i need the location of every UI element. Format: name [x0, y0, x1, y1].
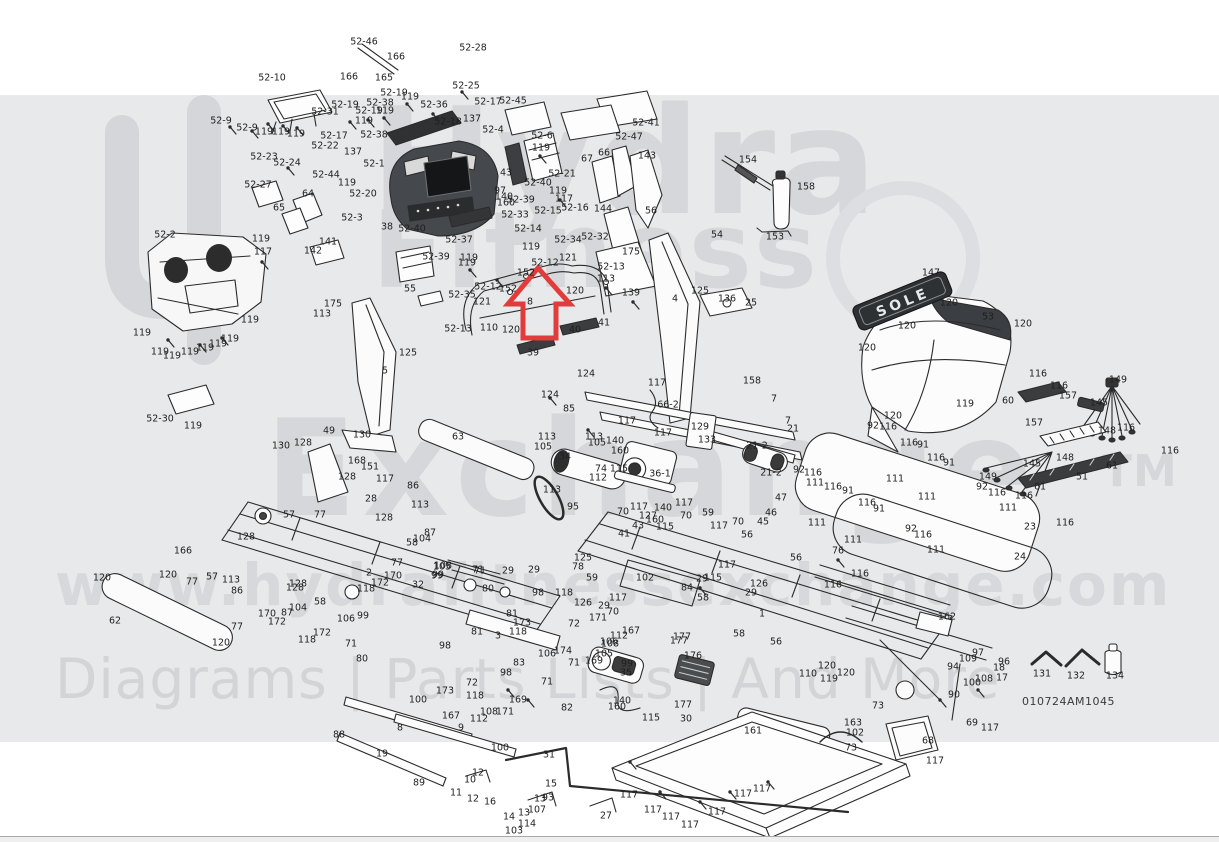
part-label-147: 147	[922, 268, 940, 278]
part-label-105: 105	[534, 442, 552, 452]
part-label-120: 120	[159, 570, 177, 580]
part-label-98: 98	[500, 668, 512, 678]
part-label-72: 72	[466, 678, 478, 688]
part-label-71: 71	[345, 639, 357, 649]
part-label-172: 172	[313, 628, 331, 638]
part-label-177: 177	[670, 636, 688, 646]
part-label-52-2: 52-2	[154, 230, 176, 240]
part-label-119: 119	[133, 328, 151, 338]
part-label-157: 157	[1025, 418, 1043, 428]
part-label-91: 91	[842, 486, 854, 496]
part-label-52-27: 52-27	[244, 180, 272, 190]
part-label-30: 30	[680, 714, 692, 724]
part-label-13: 13	[534, 794, 546, 804]
part-label-173: 173	[436, 686, 454, 696]
part-label-124: 124	[541, 390, 559, 400]
part-label-52-36: 52-36	[420, 100, 448, 110]
part-label-116: 116	[988, 488, 1006, 498]
part-label-116: 116	[914, 530, 932, 540]
part-label-119: 119	[522, 242, 540, 252]
part-label-111: 111	[886, 474, 904, 484]
part-label-115: 115	[656, 522, 674, 532]
diagram-code: 010724AM1045	[1022, 695, 1115, 708]
part-label-167: 167	[442, 711, 460, 721]
part-label-154: 154	[739, 155, 757, 165]
part-label-16: 16	[484, 797, 496, 807]
part-label-100: 100	[491, 743, 509, 753]
part-label-86: 86	[231, 586, 243, 596]
part-label-52-18: 52-18	[434, 117, 462, 127]
part-label-52-38: 52-38	[360, 130, 388, 140]
part-label-137: 137	[344, 147, 362, 157]
part-label-113: 113	[543, 485, 561, 495]
part-label-21-2: 21-2	[760, 468, 782, 478]
part-label-95: 95	[567, 502, 579, 512]
part-label-172: 172	[268, 617, 286, 627]
part-label-117: 117	[675, 498, 693, 508]
part-label-52-33: 52-33	[501, 210, 529, 220]
part-label-68: 68	[922, 736, 934, 746]
part-label-169: 169	[585, 656, 603, 666]
part-label-52-34: 52-34	[554, 235, 582, 245]
part-label-152: 152	[499, 284, 517, 294]
part-label-52-37: 52-37	[445, 235, 473, 245]
part-label-64: 64	[302, 189, 314, 199]
part-label-52-45: 52-45	[499, 96, 527, 106]
part-label-52-39: 52-39	[422, 252, 450, 262]
part-label-136: 136	[718, 294, 736, 304]
part-label-103: 103	[505, 826, 523, 836]
part-label-91: 91	[873, 504, 885, 514]
part-label-52-35: 52-35	[448, 290, 476, 300]
part-label-56: 56	[770, 637, 782, 647]
part-label-143: 143	[638, 151, 656, 161]
part-label-120: 120	[566, 286, 584, 296]
part-label-113: 113	[597, 274, 615, 284]
part-label-118: 118	[466, 691, 484, 701]
part-label-116: 116	[1161, 446, 1179, 456]
part-label-52-41: 52-41	[632, 118, 660, 128]
part-label-88: 88	[333, 730, 345, 740]
part-label-128: 128	[294, 438, 312, 448]
part-label-52-44: 52-44	[312, 170, 340, 180]
part-label-175: 175	[622, 247, 640, 257]
part-label-52-21: 52-21	[548, 169, 576, 179]
part-label-7: 7	[771, 394, 777, 404]
part-label-94: 94	[947, 662, 959, 672]
part-label-171: 171	[589, 613, 607, 623]
part-label-31: 31	[543, 750, 555, 760]
part-label-4: 4	[672, 294, 678, 304]
part-label-125: 125	[691, 286, 709, 296]
part-label-59: 59	[702, 508, 714, 518]
part-label-52-47: 52-47	[615, 132, 643, 142]
part-label-1: 1	[759, 609, 765, 619]
part-label-58: 58	[314, 597, 326, 607]
part-label-176: 176	[684, 651, 702, 661]
part-label-126: 126	[574, 598, 592, 608]
part-label-52-22: 52-22	[311, 141, 339, 151]
part-label-113: 113	[222, 575, 240, 585]
part-label-131: 131	[1033, 669, 1051, 679]
part-label-66-2: 66-2	[657, 400, 679, 410]
part-label-111: 111	[999, 503, 1017, 513]
part-label-169: 169	[509, 695, 527, 705]
part-label-109: 109	[959, 654, 977, 664]
part-label-60: 60	[1002, 396, 1014, 406]
part-label-117: 117	[648, 378, 666, 388]
part-label-84: 84	[681, 583, 693, 593]
part-label-120: 120	[898, 321, 916, 331]
part-label-24: 24	[1014, 552, 1026, 562]
part-label-91: 91	[917, 440, 929, 450]
part-label-128: 128	[375, 513, 393, 523]
part-label-35: 35	[620, 668, 632, 678]
part-label-69: 69	[966, 718, 978, 728]
part-label-52-46: 52-46	[350, 37, 378, 47]
part-label-137: 137	[463, 114, 481, 124]
part-label-34: 34	[559, 452, 571, 462]
part-label-116: 116	[1015, 491, 1033, 501]
part-label-152: 152	[517, 268, 535, 278]
part-label-90: 90	[948, 690, 960, 700]
bottom-strip	[0, 837, 1219, 842]
part-label-120: 120	[93, 573, 111, 583]
part-label-73: 73	[845, 743, 857, 753]
part-label-70: 70	[680, 511, 692, 521]
part-label-117: 117	[254, 247, 272, 257]
part-label-119: 119	[401, 92, 419, 102]
part-label-133: 133	[698, 435, 716, 445]
part-label-116: 116	[879, 422, 897, 432]
part-label-117: 117	[620, 790, 638, 800]
part-label-119: 119	[820, 674, 838, 684]
part-label-58: 58	[697, 593, 709, 603]
part-label-107: 107	[528, 805, 546, 815]
part-label-12: 12	[467, 794, 479, 804]
part-label-119: 119	[241, 315, 259, 325]
part-label-52-13: 52-13	[444, 324, 472, 334]
part-label-11: 11	[450, 788, 462, 798]
part-label-120: 120	[1014, 319, 1032, 329]
part-label-120: 120	[940, 298, 958, 308]
part-label-119: 119	[287, 129, 305, 139]
part-label-19: 19	[376, 749, 388, 759]
part-label-158: 158	[797, 182, 815, 192]
part-label-112: 112	[589, 473, 607, 483]
part-label-78: 78	[572, 562, 584, 572]
part-label-86: 86	[407, 481, 419, 491]
part-label-99: 99	[357, 611, 369, 621]
part-label-57: 57	[206, 572, 218, 582]
part-label-117: 117	[618, 416, 636, 426]
part-label-27: 27	[600, 811, 612, 821]
part-label-145: 145	[1090, 398, 1108, 408]
part-label-117: 117	[710, 521, 728, 531]
part-label-52-16: 52-16	[561, 203, 589, 213]
part-label-157: 157	[1059, 391, 1077, 401]
parts-diagram-page: Hydra Fitness Exchange TM www.hydrafitne…	[0, 0, 1219, 842]
part-label-142: 142	[304, 246, 322, 256]
part-label-58: 58	[733, 629, 745, 639]
part-label-117: 117	[376, 474, 394, 484]
part-label-43: 43	[632, 521, 644, 531]
part-label-125: 125	[399, 348, 417, 358]
part-label-160: 160	[608, 702, 626, 712]
part-label-71: 71	[541, 677, 553, 687]
part-label-67: 67	[581, 154, 593, 164]
part-label-9: 9	[458, 723, 464, 733]
part-label-43: 43	[500, 168, 512, 178]
part-label-160: 160	[611, 446, 629, 456]
part-label-53: 53	[982, 312, 994, 322]
part-label-21-2: 21-2	[746, 441, 768, 451]
part-label-45: 45	[757, 517, 769, 527]
part-label-8: 8	[527, 297, 533, 307]
part-label-52-40: 52-40	[524, 178, 552, 188]
part-label-52-17: 52-17	[474, 97, 502, 107]
part-label-117: 117	[609, 593, 627, 603]
part-label-174: 174	[554, 646, 572, 656]
part-label-56: 56	[645, 206, 657, 216]
part-label-161: 161	[744, 726, 762, 736]
part-label-52-28: 52-28	[459, 43, 487, 53]
part-label-111: 111	[927, 545, 945, 555]
part-label-29: 29	[528, 565, 540, 575]
part-label-119: 119	[255, 127, 273, 137]
part-label-116: 116	[900, 438, 918, 448]
part-label-119: 119	[252, 234, 270, 244]
part-label-115: 115	[610, 464, 628, 474]
part-label-81: 81	[471, 627, 483, 637]
part-label-38: 38	[381, 222, 393, 232]
part-label-134: 134	[1106, 671, 1124, 681]
part-label-119: 119	[184, 421, 202, 431]
part-label-120: 120	[837, 668, 855, 678]
part-label-61: 61	[1106, 461, 1118, 471]
part-label-119: 119	[956, 399, 974, 409]
part-label-121: 121	[473, 297, 491, 307]
part-label-52-30: 52-30	[146, 414, 174, 424]
part-label-102: 102	[636, 573, 654, 583]
part-label-117: 117	[708, 807, 726, 817]
part-label-92: 92	[867, 421, 879, 431]
part-label-119: 119	[221, 334, 239, 344]
part-label-117: 117	[662, 812, 680, 822]
part-label-98: 98	[439, 641, 451, 651]
part-label-52-24: 52-24	[273, 158, 301, 168]
part-label-83: 83	[513, 658, 525, 668]
part-label-118: 118	[555, 588, 573, 598]
part-label-119: 119	[532, 143, 550, 153]
part-label-118: 118	[509, 627, 527, 637]
part-label-52-4: 52-4	[482, 125, 504, 135]
part-label-110: 110	[799, 669, 817, 679]
part-label-144: 144	[594, 204, 612, 214]
part-label-28: 28	[365, 494, 377, 504]
part-label-29: 29	[745, 588, 757, 598]
part-label-14: 14	[503, 812, 515, 822]
part-label-111: 111	[918, 492, 936, 502]
part-label-117: 117	[734, 789, 752, 799]
part-label-106: 106	[337, 614, 355, 624]
part-label-2: 2	[366, 568, 372, 578]
part-label-49: 49	[323, 426, 335, 436]
part-label-52-10: 52-10	[258, 73, 286, 83]
part-label-63: 63	[452, 432, 464, 442]
part-label-61: 61	[1034, 482, 1046, 492]
part-label-111: 111	[806, 478, 824, 488]
part-label-151: 151	[361, 462, 379, 472]
part-label-54: 54	[711, 230, 723, 240]
part-label-117: 117	[718, 560, 736, 570]
part-label-119: 119	[338, 178, 356, 188]
part-label-5: 5	[382, 366, 388, 376]
part-label-23: 23	[1024, 522, 1036, 532]
part-label-13: 13	[518, 808, 530, 818]
part-label-52-9: 52-9	[210, 116, 232, 126]
part-label-119: 119	[458, 258, 476, 268]
part-label-117: 117	[654, 428, 672, 438]
part-label-47: 47	[775, 493, 787, 503]
part-label-39: 39	[527, 348, 539, 358]
part-label-92: 92	[976, 482, 988, 492]
part-label-120: 120	[502, 325, 520, 335]
part-label-148: 148	[1098, 426, 1116, 436]
part-label-119: 119	[376, 106, 394, 116]
part-label-113: 113	[313, 309, 331, 319]
part-label-55: 55	[404, 284, 416, 294]
part-label-153: 153	[766, 232, 784, 242]
part-label-52-32: 52-32	[581, 232, 609, 242]
part-label-72: 72	[568, 619, 580, 629]
part-label-102: 102	[846, 728, 864, 738]
part-label-52-3: 52-3	[341, 213, 363, 223]
part-label-59: 59	[586, 573, 598, 583]
part-label-56: 56	[790, 553, 802, 563]
part-label-51: 51	[1076, 472, 1088, 482]
part-label-117: 117	[681, 820, 699, 830]
part-label-125: 125	[574, 553, 592, 563]
part-label-129: 129	[691, 422, 709, 432]
part-label-166: 166	[340, 72, 358, 82]
part-label-52-40: 52-40	[398, 224, 426, 234]
part-label-117: 117	[926, 756, 944, 766]
part-label-105: 105	[588, 438, 606, 448]
part-label-80: 80	[482, 584, 494, 594]
part-label-32: 32	[412, 580, 424, 590]
part-label-118: 118	[357, 584, 375, 594]
part-label-116: 116	[851, 569, 869, 579]
part-label-116: 116	[824, 580, 842, 590]
part-label-128: 128	[237, 532, 255, 542]
part-label-116: 116	[824, 482, 842, 492]
part-label-128: 128	[338, 472, 356, 482]
part-label-145: 145	[1023, 459, 1041, 469]
part-label-71: 71	[568, 658, 580, 668]
part-label-117: 117	[753, 784, 771, 794]
part-label-98: 98	[532, 588, 544, 598]
part-label-115: 115	[642, 713, 660, 723]
part-label-166: 166	[387, 52, 405, 62]
part-label-52-12: 52-12	[531, 258, 559, 268]
part-label-62: 62	[109, 616, 121, 626]
part-label-3: 3	[495, 631, 501, 641]
part-label-166: 166	[174, 546, 192, 556]
part-label-56: 56	[741, 530, 753, 540]
part-label-158: 158	[743, 376, 761, 386]
part-label-139: 139	[622, 288, 640, 298]
part-label-77: 77	[231, 622, 243, 632]
part-label-52-15: 52-15	[534, 206, 562, 216]
part-label-10: 10	[464, 775, 476, 785]
part-label-70: 70	[607, 607, 619, 617]
part-label-21: 21	[787, 424, 799, 434]
part-label-73: 73	[872, 701, 884, 711]
part-label-52-6: 52-6	[531, 131, 553, 141]
part-label-76: 76	[832, 546, 844, 556]
part-label-132: 132	[1067, 671, 1085, 681]
part-label-162: 162	[938, 612, 956, 622]
part-label-15: 15	[545, 779, 557, 789]
part-label-116: 116	[1029, 369, 1047, 379]
part-label-120: 120	[212, 638, 230, 648]
part-label-165: 165	[375, 73, 393, 83]
part-label-116: 116	[1117, 423, 1135, 433]
part-label-29: 29	[696, 574, 708, 584]
part-label-113: 113	[411, 500, 429, 510]
part-label-8: 8	[397, 723, 403, 733]
part-label-112: 112	[470, 714, 488, 724]
part-label-80: 80	[356, 654, 368, 664]
part-label-66: 66	[598, 148, 610, 158]
part-label-119: 119	[355, 116, 373, 126]
part-label-100: 100	[963, 678, 981, 688]
part-label-25: 25	[745, 298, 757, 308]
part-label-52-39: 52-39	[507, 195, 535, 205]
part-label-41: 41	[618, 529, 630, 539]
part-label-52-1: 52-1	[363, 159, 385, 169]
part-label-52-20: 52-20	[349, 189, 377, 199]
part-label-82: 82	[561, 703, 573, 713]
part-label-77: 77	[314, 510, 326, 520]
part-label-117: 117	[981, 723, 999, 733]
part-label-177: 177	[674, 700, 692, 710]
part-label-171: 171	[496, 707, 514, 717]
part-label-111: 111	[808, 518, 826, 528]
part-label-52-14: 52-14	[514, 224, 542, 234]
part-label-52-25: 52-25	[452, 81, 480, 91]
part-label-100: 100	[409, 695, 427, 705]
part-label-120: 120	[858, 343, 876, 353]
part-label-52-13: 52-13	[597, 262, 625, 272]
part-label-57: 57	[283, 510, 295, 520]
part-label-130: 130	[353, 430, 371, 440]
part-label-130: 130	[272, 441, 290, 451]
part-label-77: 77	[391, 558, 403, 568]
part-label-70: 70	[732, 517, 744, 527]
part-label-52-12: 52-12	[474, 282, 502, 292]
part-label-124: 124	[577, 369, 595, 379]
part-label-119: 119	[163, 351, 181, 361]
part-label-41: 41	[598, 318, 610, 328]
part-label-52-31: 52-31	[311, 107, 339, 117]
part-label-116: 116	[1056, 518, 1074, 528]
part-label-120: 120	[884, 411, 902, 421]
part-label-128: 128	[286, 583, 304, 593]
part-label-65: 65	[273, 203, 285, 213]
part-label-117: 117	[644, 805, 662, 815]
